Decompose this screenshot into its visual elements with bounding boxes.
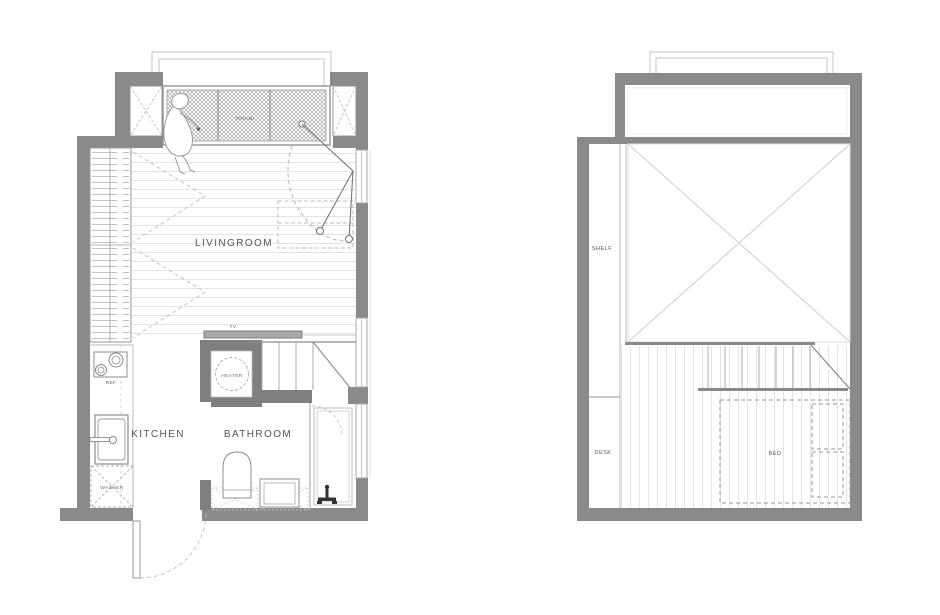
void-area	[628, 144, 850, 342]
shower-fixture-icon	[317, 485, 337, 504]
basin-icon	[260, 479, 299, 507]
desk-label: DESK	[595, 450, 612, 456]
loft-floor-planks	[621, 346, 850, 508]
desk-strip	[589, 344, 620, 508]
floor-plan-page: LIVINGROOM KITCHEN BATHROOM TATAMI HEATE…	[0, 0, 940, 615]
shower-door-arc	[312, 406, 342, 436]
entrance-opening	[133, 507, 202, 522]
stairs	[255, 342, 356, 390]
tatami-label: TATAMI	[236, 116, 255, 122]
duct-box-right	[333, 86, 356, 136]
bathroom-block	[200, 340, 356, 510]
tv-label: TV	[230, 324, 237, 330]
shower-room	[310, 403, 352, 510]
livingroom-label: LIVINGROOM	[195, 238, 273, 249]
top-room-inner	[628, 88, 847, 134]
loft-floor-plan: SHELF DESK BED	[577, 52, 862, 521]
washer-label: WASHER	[100, 485, 123, 491]
shelf-strip	[620, 144, 626, 344]
ground-floor-plan: LIVINGROOM KITCHEN BATHROOM TATAMI HEATE…	[60, 52, 370, 578]
heater-label: HEATER	[221, 373, 243, 379]
stove-icon	[94, 352, 127, 377]
kitchen-label: KITCHEN	[131, 429, 185, 440]
bed-label: BED	[769, 451, 782, 457]
loft-bay-window	[650, 52, 833, 76]
bathroom-label: BATHROOM	[224, 429, 292, 440]
ref-label: REF	[106, 380, 117, 386]
duct-box-left	[130, 86, 162, 136]
floor-plan-drawing: LIVINGROOM KITCHEN BATHROOM TATAMI HEATE…	[0, 0, 940, 615]
shelf-label: SHELF	[592, 246, 612, 252]
bay-window	[152, 52, 331, 86]
sink-icon	[90, 415, 128, 464]
toilet-icon	[223, 452, 251, 498]
